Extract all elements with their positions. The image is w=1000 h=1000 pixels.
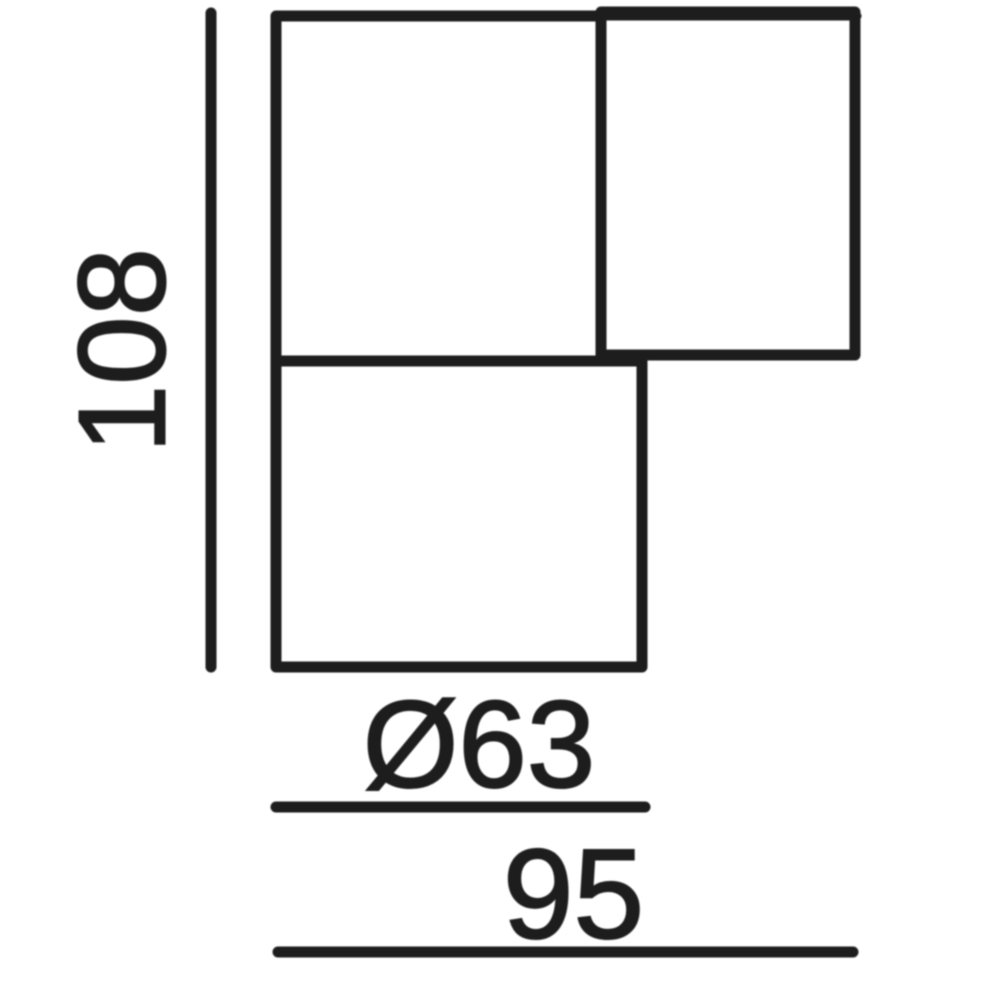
svg-text:95: 95	[503, 823, 644, 965]
svg-text:Ø63: Ø63	[363, 677, 596, 814]
svg-text:108: 108	[55, 248, 192, 453]
